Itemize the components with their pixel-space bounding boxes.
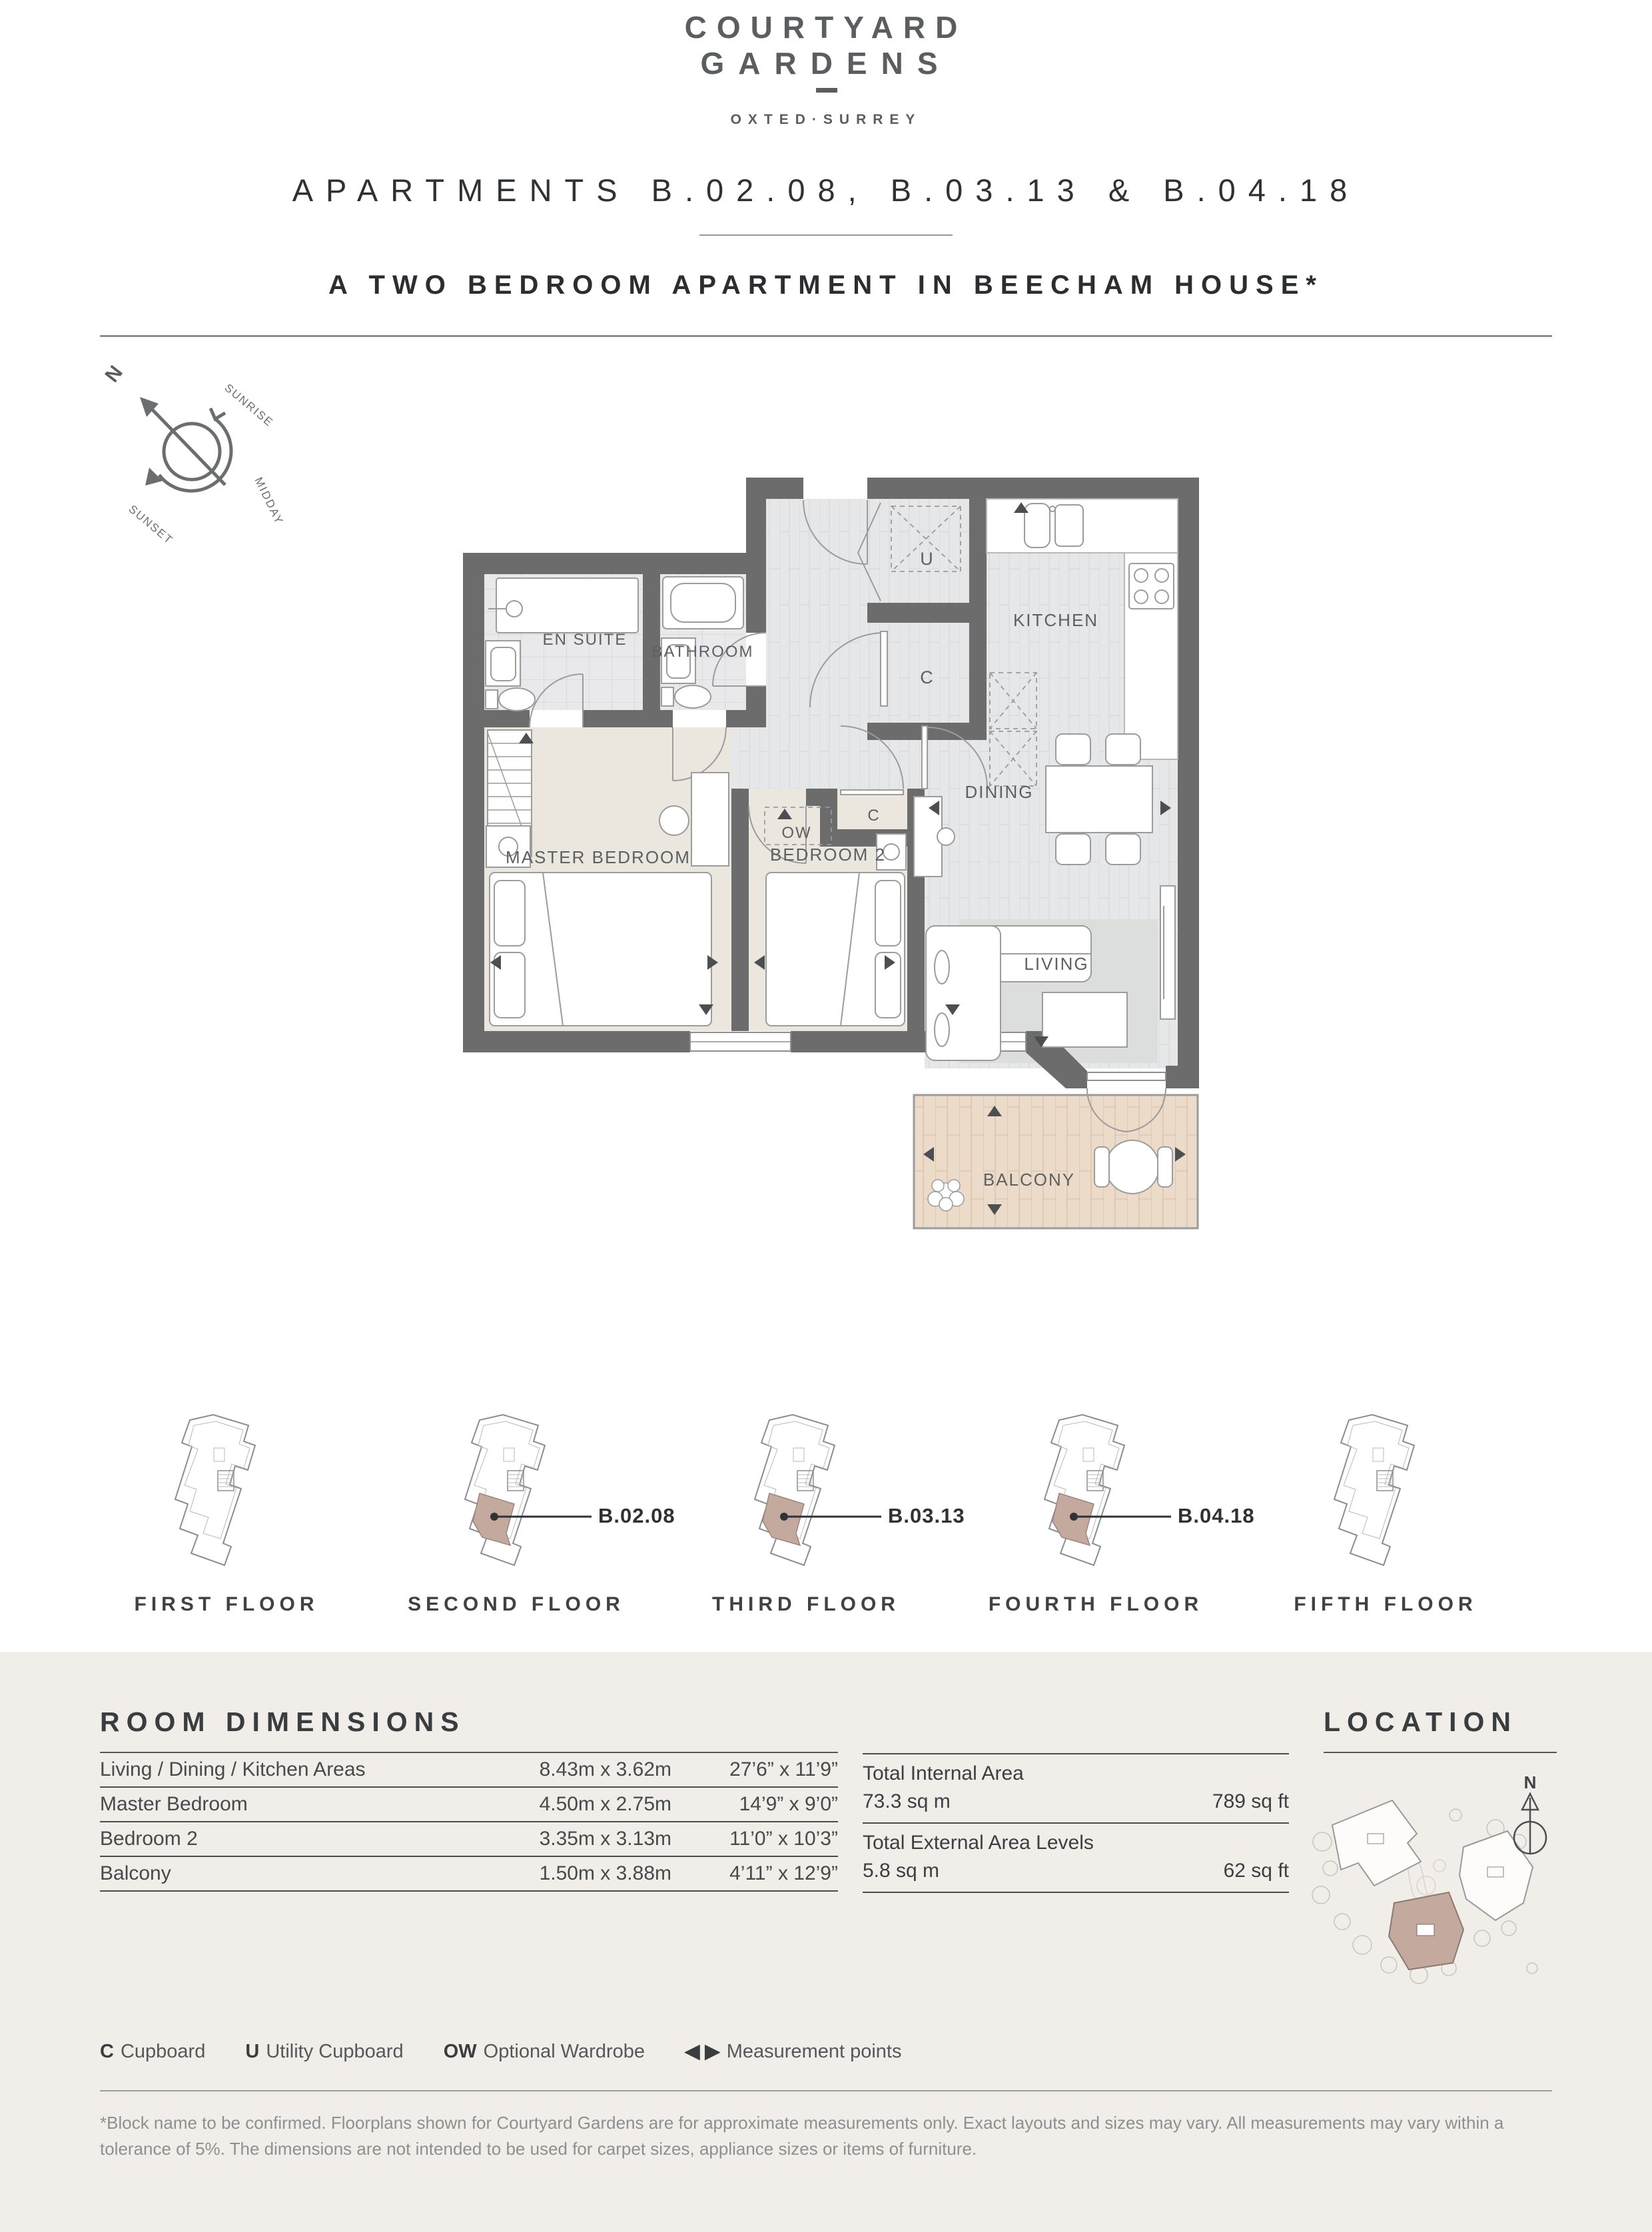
keyplan-fifth-floor xyxy=(1309,1407,1462,1573)
keyplan-second-floor xyxy=(440,1407,593,1573)
legend-item-optional-wardrobe: OWOptional Wardrobe xyxy=(444,2041,645,2062)
balcony-chair xyxy=(1094,1147,1109,1187)
balcony-chair xyxy=(1158,1147,1172,1187)
brand-location: OXTED·SURREY xyxy=(0,112,1652,128)
master-bedroom-label: MASTER BEDROOM xyxy=(506,847,691,867)
brand-name-line1: COURTYARD xyxy=(0,9,1652,45)
pillow xyxy=(494,881,525,946)
row-name: Bedroom 2 xyxy=(100,1828,498,1850)
row-name: Balcony xyxy=(100,1862,498,1885)
total-external-metric: 5.8 sq m xyxy=(863,1860,939,1882)
bathroom-wc-cistern xyxy=(661,687,673,706)
legend-item-cupboard: CCupboard xyxy=(100,2041,205,2062)
disclaimer-text: *Block name to be confirmed. Floorplans … xyxy=(100,2110,1539,2162)
master-window xyxy=(690,1032,791,1051)
apartment-label-b0418: B.04.18 xyxy=(1178,1504,1255,1528)
legend-label: Measurement points xyxy=(727,2041,902,2062)
apartment-label-b0208: B.02.08 xyxy=(598,1504,675,1528)
row-metric: 3.35m x 3.13m xyxy=(498,1828,671,1850)
row-metric: 4.50m x 2.75m xyxy=(498,1793,671,1816)
total-external: Total External Area Levels 5.8 sq m 62 s… xyxy=(863,1822,1289,1893)
kitchen-label: KITCHEN xyxy=(1013,610,1098,630)
legend-label: Cupboard xyxy=(121,2041,205,2062)
bathroom-wc xyxy=(675,685,711,708)
site-building-east xyxy=(1459,1831,1533,1920)
table-row: Master Bedroom 4.50m x 2.75m 14’9” x 9’0… xyxy=(100,1788,838,1822)
en-suite-label: EN SUITE xyxy=(543,631,627,649)
keyplan-first-floor xyxy=(150,1407,303,1573)
total-internal-metric: 73.3 sq m xyxy=(863,1790,951,1813)
legend-label: Utility Cupboard xyxy=(266,2041,403,2062)
sideboard-lamp xyxy=(937,828,955,845)
location-heading: LOCATION xyxy=(1324,1706,1517,1738)
balcony-label: BALCONY xyxy=(983,1170,1075,1190)
total-internal-imperial: 789 sq ft xyxy=(1212,1790,1289,1813)
optional-wardrobe-label: OW xyxy=(781,824,811,842)
dining-table xyxy=(1046,766,1152,833)
sun-compass: N SUNRISE MIDDAY SUNSET xyxy=(80,340,293,553)
plan-legend: CCupboard UUtility Cupboard OWOptional W… xyxy=(100,2040,1565,2063)
third-floor-label: THIRD FLOOR xyxy=(686,1593,926,1616)
pillow xyxy=(875,881,901,946)
brand-name-line2: GARDENS xyxy=(0,45,1652,81)
legend-item-measurement-points: ◀ ▶Measurement points xyxy=(685,2041,901,2062)
total-internal-label: Total Internal Area xyxy=(863,1762,1289,1785)
hob xyxy=(1129,563,1174,609)
header-rule xyxy=(100,335,1552,337)
ensuite-wc-cistern xyxy=(486,690,498,709)
first-floor-label: FIRST FLOOR xyxy=(107,1593,346,1616)
total-internal: Total Internal Area 73.3 sq m 789 sq ft xyxy=(863,1753,1289,1822)
legend-key: C xyxy=(100,2041,114,2062)
second-floor-label: SECOND FLOOR xyxy=(396,1593,636,1616)
dining-chair xyxy=(1056,834,1090,865)
location-site-map: N xyxy=(1296,1768,1569,2002)
bedroom2-label: BEDROOM 2 xyxy=(770,845,886,865)
bathroom-label: BATHROOM xyxy=(652,643,754,661)
site-building-north xyxy=(1332,1800,1421,1886)
coffee-table xyxy=(1042,992,1127,1047)
keyplan-fourth-floor xyxy=(1019,1407,1172,1573)
ensuite-wc xyxy=(499,688,535,711)
apartment-label-b0313: B.03.13 xyxy=(888,1504,965,1528)
total-external-label: Total External Area Levels xyxy=(863,1832,1289,1854)
sunrise-fork-icon xyxy=(210,408,225,419)
page-title: APARTMENTS B.02.08, B.03.13 & B.04.18 xyxy=(0,172,1652,208)
row-metric: 1.50m x 3.88m xyxy=(498,1862,671,1885)
dining-chair xyxy=(1106,734,1140,765)
compass-north-label: N xyxy=(101,362,127,386)
dining-chair xyxy=(1106,834,1140,865)
room-dimensions-heading: ROOM DIMENSIONS xyxy=(100,1706,466,1738)
cupboard-kitchen-label: C xyxy=(920,667,935,687)
row-imperial: 4’11” x 12’9” xyxy=(671,1862,838,1885)
brochure-page: COURTYARD GARDENS OXTED·SURREY APARTMENT… xyxy=(0,0,1652,2232)
dressing-table xyxy=(691,773,729,866)
kitchen-sink-bowl xyxy=(1025,504,1050,548)
row-name: Living / Dining / Kitchen Areas xyxy=(100,1758,498,1781)
stool xyxy=(659,806,689,835)
legend-key: U xyxy=(245,2041,259,2062)
tv-unit xyxy=(1160,886,1175,1019)
fourth-floor-label: FOURTH FLOOR xyxy=(976,1593,1216,1616)
location-rule xyxy=(1324,1752,1557,1753)
dimensions-table: Living / Dining / Kitchen Areas 8.43m x … xyxy=(100,1753,838,1892)
shower-head-icon xyxy=(506,601,522,617)
legend-rule xyxy=(100,2090,1552,2091)
north-label: N xyxy=(1524,1772,1537,1792)
plant-icon xyxy=(928,1180,964,1211)
title-underline xyxy=(699,234,953,236)
floor-plan: EN SUITE BATHROOM U C KITCHEN DINING C O… xyxy=(433,433,1206,1239)
kitchen-sink-drainer xyxy=(1055,505,1083,546)
legend-key: OW xyxy=(444,2041,477,2062)
site-buildings xyxy=(1332,1800,1533,1970)
page-subtitle: A TWO BEDROOM APARTMENT IN BEECHAM HOUSE… xyxy=(0,270,1652,300)
dining-label: DINING xyxy=(965,782,1034,802)
sunrise-label: SUNRISE xyxy=(222,382,276,430)
fifth-floor-label: FIFTH FLOOR xyxy=(1266,1593,1505,1616)
table-row: Living / Dining / Kitchen Areas 8.43m x … xyxy=(100,1753,838,1788)
row-metric: 8.43m x 3.62m xyxy=(498,1758,671,1781)
brand-divider-dash xyxy=(816,88,837,93)
measurement-points-icon: ◀ ▶ xyxy=(685,2041,720,2062)
row-imperial: 27’6” x 11’9” xyxy=(671,1758,838,1781)
sunset-label: SUNSET xyxy=(126,503,175,548)
legend-label: Optional Wardrobe xyxy=(484,2041,645,2062)
table-row: Bedroom 2 3.35m x 3.13m 11’0” x 10’3” xyxy=(100,1822,838,1857)
total-external-imperial: 62 sq ft xyxy=(1224,1860,1289,1882)
midday-label: MIDDAY xyxy=(252,475,286,526)
balcony-table xyxy=(1106,1140,1159,1194)
balcony-door-threshold xyxy=(1087,1072,1166,1080)
legend-item-utility: UUtility Cupboard xyxy=(245,2041,403,2062)
table-row: Balcony 1.50m x 3.88m 4’11” x 12’9” xyxy=(100,1857,838,1892)
totals-block: Total Internal Area 73.3 sq m 789 sq ft … xyxy=(863,1753,1289,1893)
utility-label: U xyxy=(920,549,935,569)
row-imperial: 14’9” x 9’0” xyxy=(671,1793,838,1816)
keyplan-third-floor xyxy=(729,1407,883,1573)
row-imperial: 11’0” x 10’3” xyxy=(671,1828,838,1850)
dining-chair xyxy=(1056,734,1090,765)
north-arrow: N xyxy=(1514,1772,1546,1854)
cupboard-hall-label: C xyxy=(867,807,880,825)
living-label: LIVING xyxy=(1024,954,1088,974)
row-name: Master Bedroom xyxy=(100,1793,498,1816)
